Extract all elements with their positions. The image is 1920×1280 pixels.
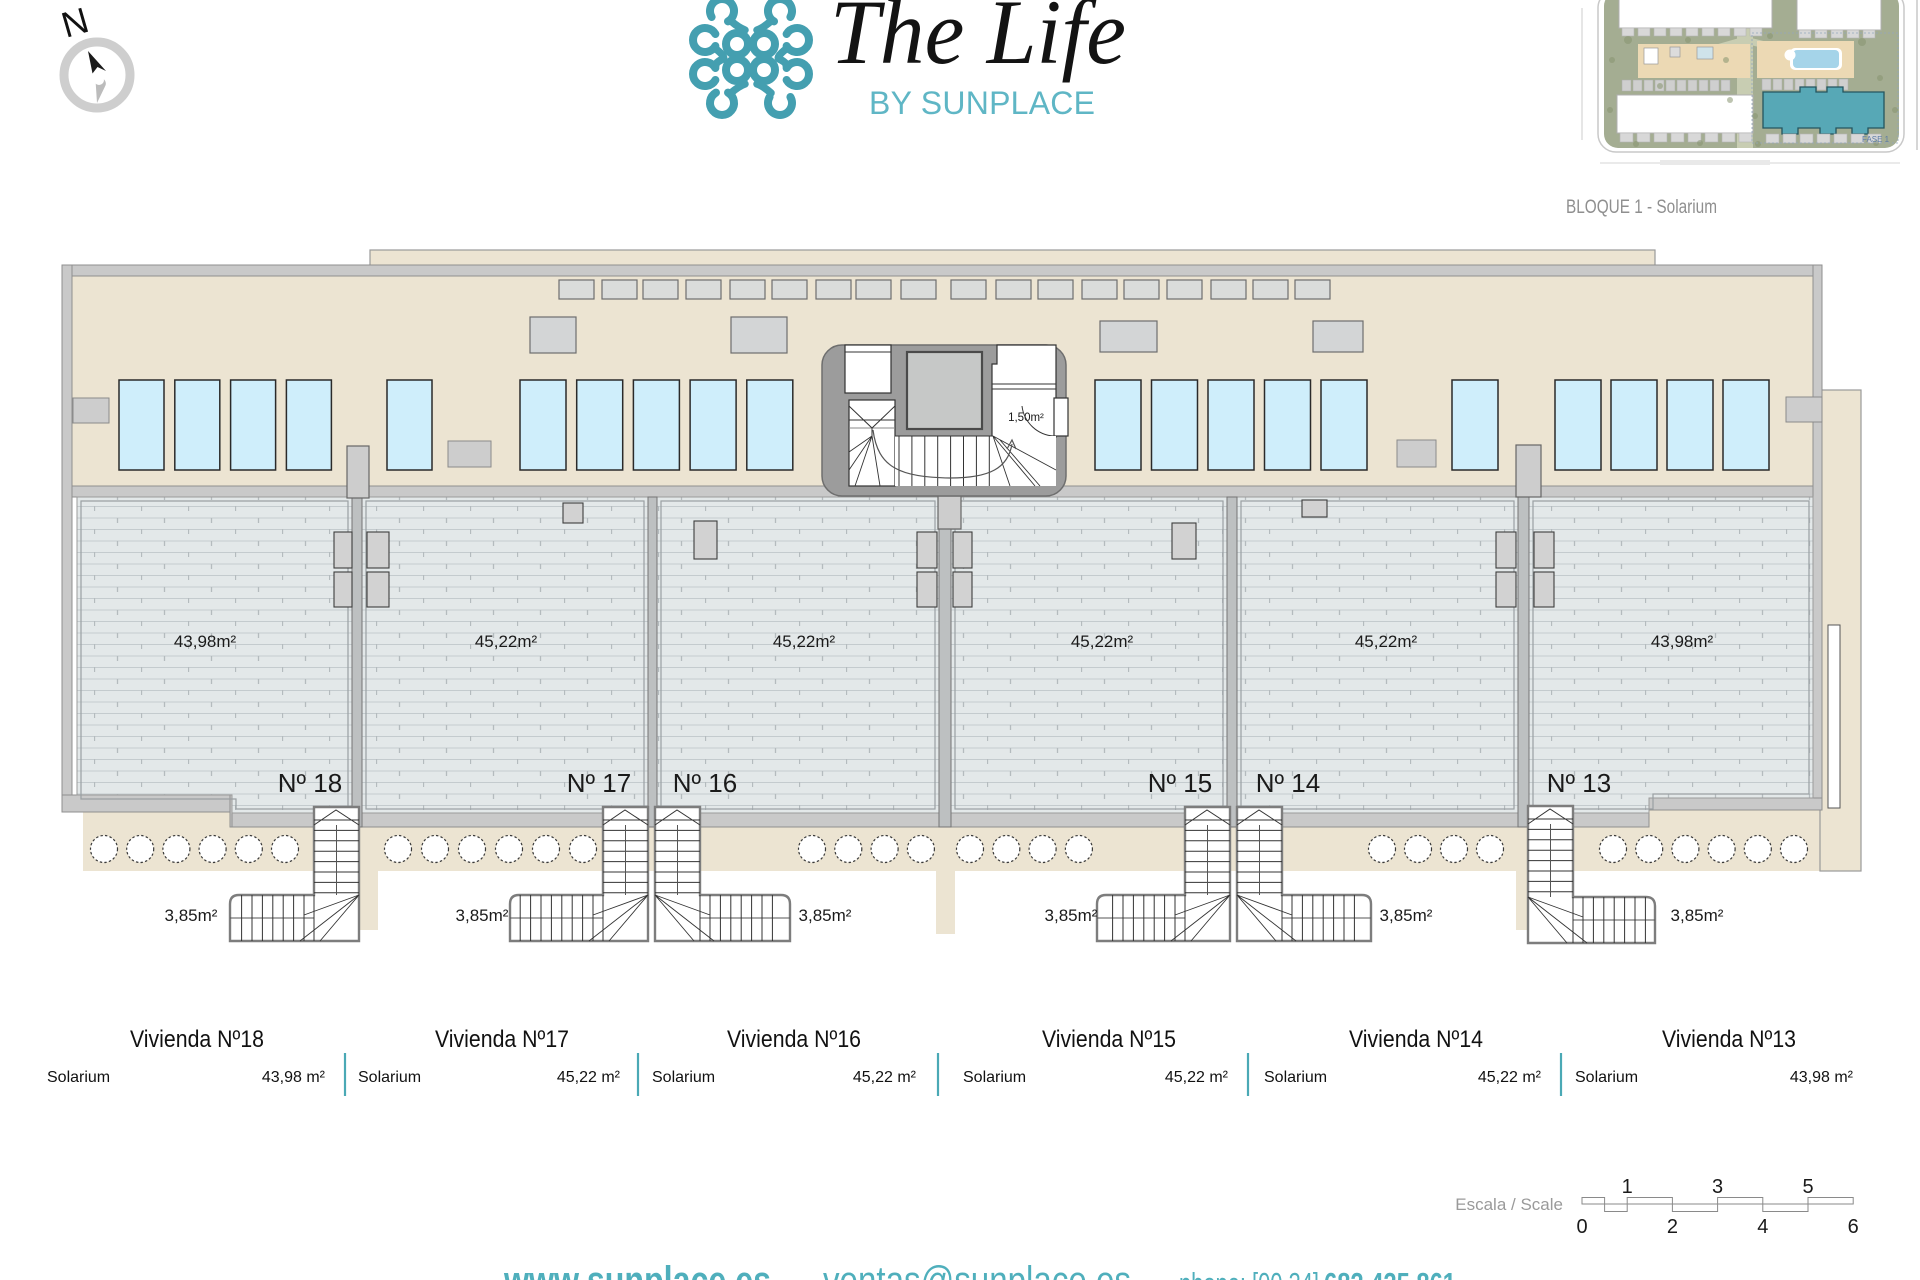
svg-text:3,85m²: 3,85m² bbox=[1671, 906, 1724, 925]
svg-text:45,22 m²: 45,22 m² bbox=[1478, 1069, 1542, 1086]
svg-text:43,98 m²: 43,98 m² bbox=[1790, 1069, 1854, 1086]
svg-text:1: 1 bbox=[1622, 1176, 1633, 1198]
svg-text:Nº 18: Nº 18 bbox=[278, 768, 342, 798]
svg-text:3,85m²: 3,85m² bbox=[165, 906, 218, 925]
svg-text:3,85m²: 3,85m² bbox=[1380, 906, 1433, 925]
svg-text:45,22m²: 45,22m² bbox=[773, 632, 836, 651]
svg-text:45,22m²: 45,22m² bbox=[475, 632, 538, 651]
svg-text:45,22 m²: 45,22 m² bbox=[853, 1069, 917, 1086]
svg-text:Solarium: Solarium bbox=[47, 1069, 110, 1086]
svg-text:Vivienda Nº14: Vivienda Nº14 bbox=[1349, 1026, 1483, 1053]
svg-text:Nº 17: Nº 17 bbox=[567, 768, 631, 798]
svg-text:0: 0 bbox=[1576, 1216, 1587, 1238]
svg-text:Solarium: Solarium bbox=[963, 1069, 1026, 1086]
svg-text:Vivienda Nº15: Vivienda Nº15 bbox=[1042, 1026, 1176, 1053]
svg-text:FASE 1: FASE 1 bbox=[1862, 135, 1890, 144]
svg-text:6: 6 bbox=[1848, 1216, 1859, 1238]
svg-text:3,85m²: 3,85m² bbox=[1045, 906, 1098, 925]
svg-text:ventas@sunplace.es: ventas@sunplace.es bbox=[823, 1259, 1131, 1280]
svg-text:Solarium: Solarium bbox=[1264, 1069, 1327, 1086]
svg-text:45,22 m²: 45,22 m² bbox=[1165, 1069, 1229, 1086]
svg-text:45,22m²: 45,22m² bbox=[1071, 632, 1134, 651]
svg-text:4: 4 bbox=[1757, 1216, 1768, 1238]
svg-text:Vivienda Nº16: Vivienda Nº16 bbox=[727, 1026, 861, 1053]
svg-text:phone: [00 34]: phone: [00 34] bbox=[1179, 1266, 1319, 1280]
svg-text:Escala / Scale: Escala / Scale bbox=[1455, 1195, 1563, 1214]
svg-text:www.sunplace.es: www.sunplace.es bbox=[503, 1259, 771, 1280]
svg-text:43,98m²: 43,98m² bbox=[174, 632, 237, 651]
svg-text:5: 5 bbox=[1802, 1176, 1813, 1198]
svg-text:Nº 16: Nº 16 bbox=[673, 768, 737, 798]
svg-text:BY SUNPLACE: BY SUNPLACE bbox=[869, 85, 1095, 121]
svg-text:Solarium: Solarium bbox=[358, 1069, 421, 1086]
svg-text:-: - bbox=[790, 1264, 801, 1280]
svg-text:Solarium: Solarium bbox=[652, 1069, 715, 1086]
svg-text:43,98 m²: 43,98 m² bbox=[262, 1069, 326, 1086]
svg-text:43,98m²: 43,98m² bbox=[1651, 632, 1714, 651]
svg-text:3,85m²: 3,85m² bbox=[799, 906, 852, 925]
svg-text:BLOQUE 1 - Solarium: BLOQUE 1 - Solarium bbox=[1566, 197, 1717, 218]
svg-text:Solarium: Solarium bbox=[1575, 1069, 1638, 1086]
svg-text:Vivienda Nº17: Vivienda Nº17 bbox=[435, 1026, 569, 1053]
svg-text:682 425 861: 682 425 861 bbox=[1324, 1266, 1456, 1280]
svg-text:45,22 m²: 45,22 m² bbox=[557, 1069, 621, 1086]
svg-text:-: - bbox=[1148, 1268, 1158, 1280]
svg-text:Nº 14: Nº 14 bbox=[1256, 768, 1320, 798]
svg-text:3: 3 bbox=[1712, 1176, 1723, 1198]
svg-text:The Life: The Life bbox=[830, 0, 1126, 83]
svg-text:2: 2 bbox=[1667, 1216, 1678, 1238]
svg-text:Nº 13: Nº 13 bbox=[1547, 768, 1611, 798]
svg-text:Vivienda Nº18: Vivienda Nº18 bbox=[130, 1026, 264, 1053]
svg-text:3,85m²: 3,85m² bbox=[456, 906, 509, 925]
svg-text:Vivienda Nº13: Vivienda Nº13 bbox=[1662, 1026, 1796, 1053]
svg-text:Nº 15: Nº 15 bbox=[1148, 768, 1212, 798]
svg-text:45,22m²: 45,22m² bbox=[1355, 632, 1418, 651]
